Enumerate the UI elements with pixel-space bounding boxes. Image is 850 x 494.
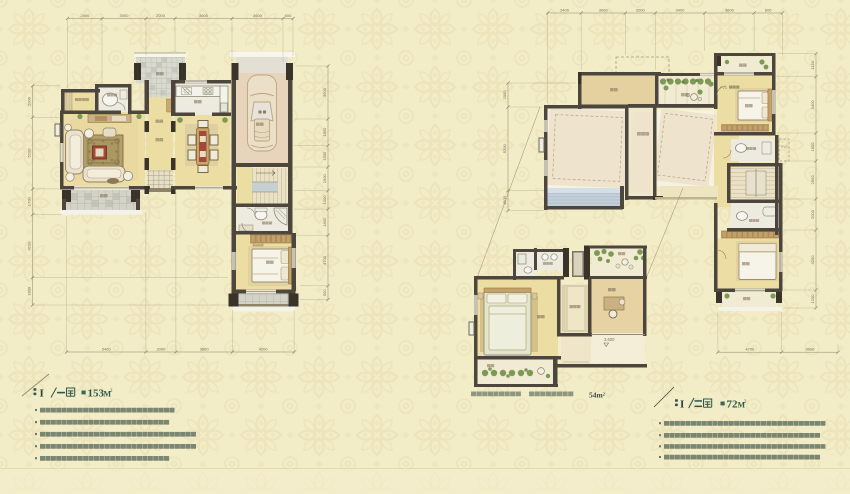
svg-text:3600: 3600 [805, 347, 815, 352]
svg-text:1150: 1150 [810, 60, 815, 69]
svg-text:1500: 1500 [322, 151, 327, 161]
svg-text:PVC: PVC [781, 145, 789, 149]
svg-text:1800: 1800 [322, 217, 327, 227]
svg-text:4700: 4700 [745, 347, 755, 352]
svg-text:2000: 2000 [27, 96, 32, 106]
svg-text:5400: 5400 [102, 347, 112, 352]
svg-text:2400: 2400 [80, 13, 90, 18]
svg-text:3600: 3600 [322, 87, 327, 97]
svg-text:1800: 1800 [27, 286, 32, 296]
svg-text:3600: 3600 [199, 13, 209, 18]
svg-text:3.600: 3.600 [604, 337, 615, 342]
svg-text:2000: 2000 [810, 209, 815, 219]
svg-text:2600: 2600 [810, 175, 815, 185]
svg-text:1800: 1800 [810, 142, 815, 152]
svg-text:5200: 5200 [27, 148, 32, 158]
svg-text:3800: 3800 [200, 347, 210, 352]
svg-text:1800: 1800 [322, 127, 327, 137]
svg-text:72: 72 [727, 399, 739, 411]
svg-text:2400: 2400 [560, 8, 570, 13]
svg-text:1200: 1200 [810, 294, 815, 304]
svg-text:3400: 3400 [810, 100, 815, 110]
svg-text:3000: 3000 [120, 13, 130, 18]
svg-text:1700: 1700 [27, 197, 32, 207]
svg-text:I: I [680, 399, 684, 411]
svg-text:5200: 5200 [502, 144, 507, 154]
svg-text:3000: 3000 [599, 8, 609, 13]
svg-text:4200: 4200 [27, 241, 32, 251]
svg-text:4200: 4200 [259, 347, 269, 352]
svg-text:3600: 3600 [725, 8, 735, 13]
svg-text:54m²: 54m² [589, 391, 606, 400]
svg-text:2000: 2000 [636, 8, 646, 13]
svg-text:4200: 4200 [810, 255, 815, 265]
svg-text:2000: 2000 [502, 90, 507, 100]
svg-text:500: 500 [322, 289, 327, 296]
svg-text:3400: 3400 [676, 8, 686, 13]
svg-text:I: I [40, 388, 44, 400]
svg-text:1200: 1200 [322, 195, 327, 205]
svg-text:PVC: PVC [720, 86, 728, 90]
svg-text:600: 600 [285, 13, 292, 18]
svg-text:600: 600 [765, 8, 772, 13]
svg-text:1600: 1600 [322, 174, 327, 184]
svg-text:3600: 3600 [253, 13, 263, 18]
svg-text:2000: 2000 [156, 347, 166, 352]
svg-text:153: 153 [88, 388, 105, 400]
svg-text:2000: 2000 [156, 13, 166, 18]
svg-text:4700: 4700 [322, 255, 327, 265]
